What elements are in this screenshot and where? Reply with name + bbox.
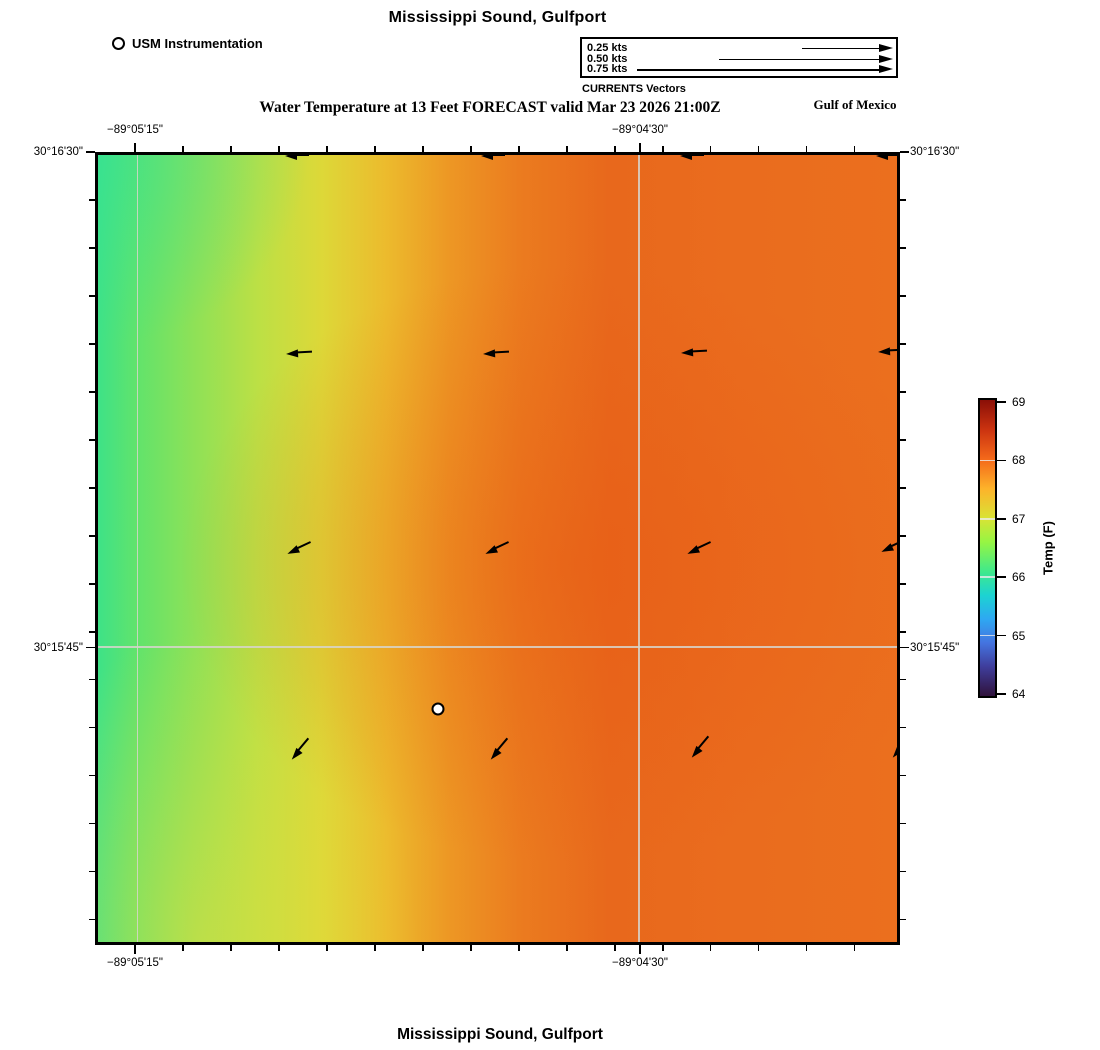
region-label: Gulf of Mexico — [805, 97, 905, 113]
colorbar-label: Temp (F) — [1041, 521, 1056, 575]
y-tick-label-left: 30°15'45" — [0, 642, 83, 654]
axis-tick-bottom — [806, 945, 808, 951]
axis-tick-top — [710, 146, 712, 152]
axis-tick-right — [900, 487, 906, 489]
axis-tick-left — [89, 439, 95, 441]
temperature-heatmap — [95, 152, 900, 945]
x-tick-label-top: −89°05'15" — [107, 124, 163, 136]
axis-tick-right — [900, 199, 906, 201]
colorbar — [978, 398, 997, 698]
axis-tick-right — [900, 919, 906, 921]
colorbar-tick-label: 69 — [1012, 395, 1025, 409]
axis-tick-left — [89, 199, 95, 201]
current-vector-head — [285, 545, 299, 557]
axis-tick-left — [89, 871, 95, 873]
x-tick-label-bottom: −89°04'30" — [612, 957, 668, 969]
vector-legend-label: 0.75 kts — [587, 64, 627, 75]
axis-tick-bottom — [518, 945, 520, 951]
axis-tick-top — [854, 146, 856, 152]
current-vector-head — [680, 152, 692, 160]
current-vector-head — [876, 152, 888, 160]
station-legend-label: USM Instrumentation — [132, 36, 263, 51]
axis-tick-top — [806, 146, 808, 152]
axis-tick-right — [900, 439, 906, 441]
axis-tick-bottom — [662, 945, 664, 951]
axis-tick-bottom — [854, 945, 856, 951]
axis-tick-right — [900, 775, 906, 777]
axis-tick-top — [374, 146, 376, 152]
vector-legend-arrowhead — [879, 55, 893, 63]
current-vector-head — [890, 746, 900, 760]
axis-tick-right — [900, 583, 906, 585]
current-vector-head — [878, 347, 890, 356]
axis-tick-right — [900, 151, 909, 153]
figure: Mississippi Sound, Gulfport USM Instrume… — [0, 0, 1100, 1050]
axis-tick-top — [230, 146, 232, 152]
axis-tick-right — [900, 727, 906, 729]
axis-tick-right — [900, 343, 906, 345]
colorbar-tick — [997, 401, 1006, 403]
axis-tick-top — [662, 146, 664, 152]
colorbar-tick — [997, 576, 1006, 578]
station-marker-icon — [112, 37, 125, 50]
colorbar-tick-label: 64 — [1012, 687, 1025, 701]
gridline-vertical — [638, 155, 640, 942]
axis-tick-right — [900, 647, 909, 649]
current-vector-head — [688, 746, 702, 760]
axis-tick-left — [89, 295, 95, 297]
axis-tick-top — [566, 146, 568, 152]
currents-legend-caption: CURRENTS Vectors — [582, 83, 686, 95]
vector-legend-line — [637, 69, 881, 70]
vector-legend-line — [802, 48, 881, 49]
colorbar-tick — [997, 460, 1006, 462]
colorbar-gridline — [980, 576, 995, 578]
axis-tick-bottom — [470, 945, 472, 951]
current-vector-head — [285, 152, 297, 160]
colorbar-tick — [997, 518, 1006, 520]
axis-tick-bottom — [278, 945, 280, 951]
colorbar-tick — [997, 635, 1006, 637]
axis-tick-left — [89, 679, 95, 681]
axis-tick-top — [470, 146, 472, 152]
axis-tick-left — [86, 647, 95, 649]
current-vector-head — [483, 349, 495, 358]
axis-tick-top — [639, 143, 641, 152]
current-vector-head — [481, 152, 493, 160]
colorbar-tick-label: 65 — [1012, 629, 1025, 643]
colorbar-tick-label: 67 — [1012, 512, 1025, 526]
axis-tick-bottom — [134, 945, 136, 954]
axis-tick-left — [86, 151, 95, 153]
axis-tick-bottom — [182, 945, 184, 951]
gridline-vertical — [137, 155, 139, 942]
chart-title: Mississippi Sound, Gulfport — [95, 9, 900, 27]
currents-vector-legend-box: 0.25 kts0.50 kts0.75 kts — [580, 37, 898, 78]
axis-tick-top — [422, 146, 424, 152]
current-vector-head — [289, 747, 303, 761]
colorbar-gridline — [980, 635, 995, 637]
axis-tick-bottom — [758, 945, 760, 951]
axis-tick-right — [900, 247, 906, 249]
axis-tick-left — [89, 775, 95, 777]
axis-tick-left — [89, 919, 95, 921]
axis-tick-left — [89, 487, 95, 489]
y-tick-label-right: 30°16'30" — [910, 146, 1005, 158]
axis-tick-top — [518, 146, 520, 152]
colorbar-tick — [997, 693, 1006, 695]
axis-tick-bottom — [566, 945, 568, 951]
axis-tick-right — [900, 535, 906, 537]
axis-tick-right — [900, 631, 906, 633]
current-vector-head — [286, 349, 298, 358]
axis-tick-left — [89, 247, 95, 249]
axis-tick-bottom — [326, 945, 328, 951]
axis-tick-bottom — [230, 945, 232, 951]
axis-tick-right — [900, 391, 906, 393]
current-vector-head — [880, 543, 894, 555]
current-vector-head — [686, 545, 700, 557]
axis-tick-left — [89, 535, 95, 537]
x-tick-label-top: −89°04'30" — [612, 124, 668, 136]
axis-tick-right — [900, 871, 906, 873]
gridline-horizontal — [98, 646, 897, 648]
axis-tick-top — [614, 146, 616, 152]
axis-tick-right — [900, 823, 906, 825]
colorbar-gridline — [980, 518, 995, 520]
axis-tick-bottom — [614, 945, 616, 951]
axis-tick-left — [89, 391, 95, 393]
colorbar-tick-label: 68 — [1012, 453, 1025, 467]
axis-tick-top — [182, 146, 184, 152]
axis-tick-left — [89, 727, 95, 729]
colorbar-tick-label: 66 — [1012, 570, 1025, 584]
current-vector-head — [483, 545, 497, 557]
axis-tick-left — [89, 823, 95, 825]
vector-legend-arrowhead — [879, 65, 893, 73]
axis-tick-top — [758, 146, 760, 152]
current-vector-head — [488, 747, 502, 761]
axis-tick-top — [326, 146, 328, 152]
axis-tick-bottom — [639, 945, 641, 954]
axis-tick-left — [89, 631, 95, 633]
vector-legend-line — [719, 59, 881, 60]
axis-tick-left — [89, 343, 95, 345]
y-tick-label-left: 30°16'30" — [0, 146, 83, 158]
axis-tick-bottom — [374, 945, 376, 951]
chart-subtitle: Water Temperature at 13 Feet FORECAST va… — [95, 99, 885, 117]
footer-title: Mississippi Sound, Gulfport — [95, 1026, 905, 1044]
axis-tick-top — [278, 146, 280, 152]
axis-tick-bottom — [710, 945, 712, 951]
x-tick-label-bottom: −89°05'15" — [107, 957, 163, 969]
axis-tick-bottom — [422, 945, 424, 951]
axis-tick-right — [900, 295, 906, 297]
vector-legend-arrowhead — [879, 44, 893, 52]
station-marker — [431, 703, 444, 716]
current-vector-head — [681, 348, 693, 357]
colorbar-gridline — [980, 460, 995, 462]
axis-tick-left — [89, 583, 95, 585]
axis-tick-right — [900, 679, 906, 681]
axis-tick-top — [134, 143, 136, 152]
